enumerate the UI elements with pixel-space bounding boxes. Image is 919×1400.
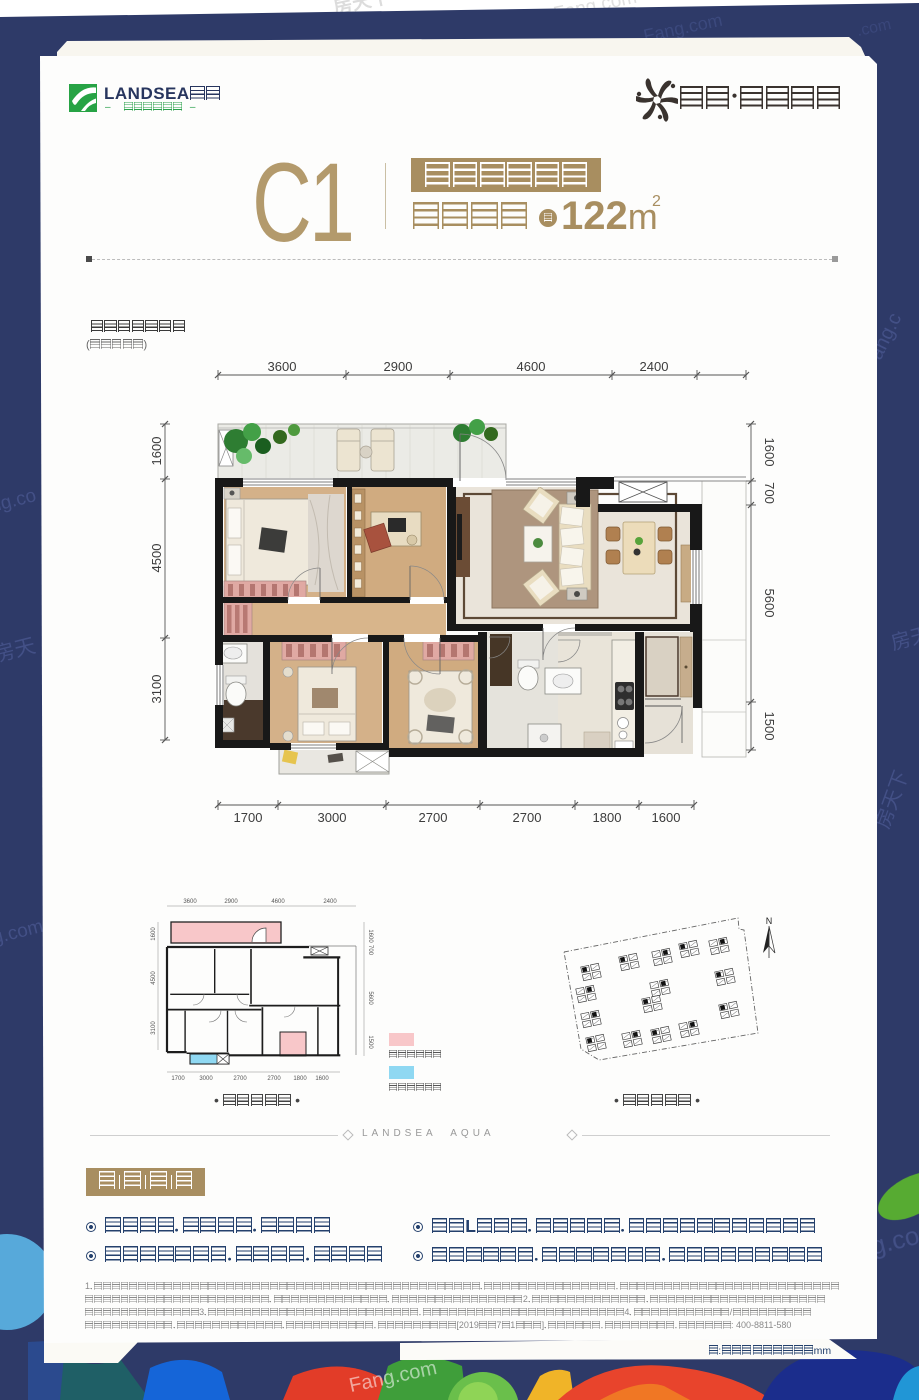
svg-text:3000: 3000 [318, 810, 347, 825]
svg-text:1600: 1600 [652, 810, 681, 825]
svg-text:1500: 1500 [762, 712, 777, 741]
svg-text:1600: 1600 [315, 1076, 329, 1082]
svg-text:1600: 1600 [149, 437, 164, 466]
svg-text:700: 700 [762, 482, 777, 504]
svg-text:2700: 2700 [419, 810, 448, 825]
svg-text:2700: 2700 [267, 1076, 281, 1082]
svg-text:2900: 2900 [224, 899, 238, 905]
svg-text:3600: 3600 [268, 359, 297, 374]
svg-text:1800: 1800 [593, 810, 622, 825]
svg-text:4500: 4500 [149, 544, 164, 573]
svg-text:1800: 1800 [293, 1076, 307, 1082]
svg-text:N: N [766, 916, 773, 926]
svg-text:3100: 3100 [149, 675, 164, 704]
svg-text:4600: 4600 [271, 899, 285, 905]
svg-text:3600: 3600 [183, 899, 197, 905]
svg-text:1600: 1600 [762, 438, 777, 467]
svg-text:1600: 1600 [367, 929, 373, 943]
svg-text:1700: 1700 [234, 810, 263, 825]
svg-text:4500: 4500 [151, 971, 157, 985]
svg-text:5600: 5600 [762, 589, 777, 618]
svg-text:2400: 2400 [323, 899, 337, 905]
svg-text:3000: 3000 [199, 1076, 213, 1082]
svg-text:2700: 2700 [513, 810, 542, 825]
svg-text:1500: 1500 [367, 1035, 373, 1049]
svg-text:3100: 3100 [151, 1021, 157, 1035]
svg-text:1600: 1600 [151, 927, 157, 941]
svg-text:4600: 4600 [517, 359, 546, 374]
svg-text:1700: 1700 [171, 1076, 185, 1082]
svg-text:700: 700 [367, 945, 373, 956]
svg-text:2900: 2900 [384, 359, 413, 374]
svg-text:2400: 2400 [640, 359, 669, 374]
svg-text:5600: 5600 [367, 991, 373, 1005]
svg-text:2700: 2700 [233, 1076, 247, 1082]
